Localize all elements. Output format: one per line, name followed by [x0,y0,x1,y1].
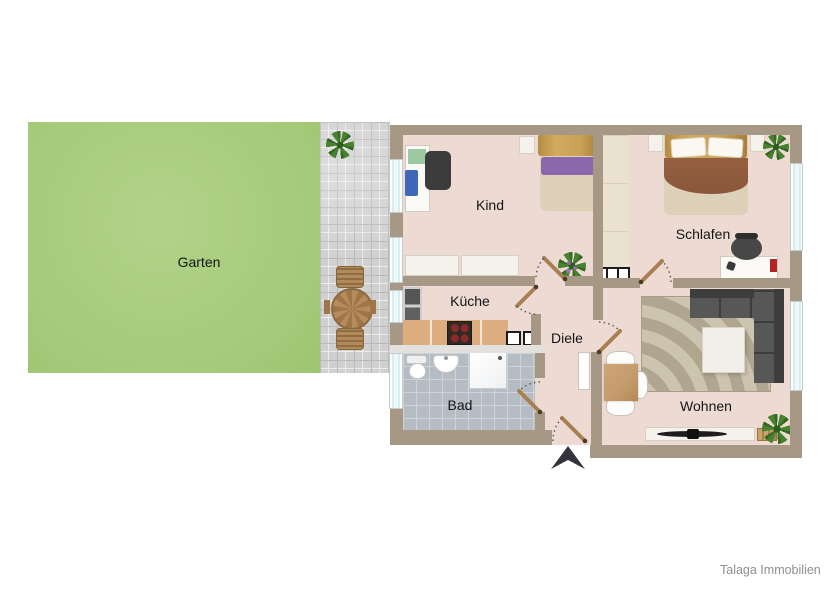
door-leaf [517,287,536,306]
brand-watermark: Talaga Immobilien [720,563,821,577]
door-swing-arc [599,322,620,331]
door-hinge [538,410,543,415]
door-hinge [534,285,539,290]
door-hinge [597,350,602,355]
room-label-bad: Bad [448,397,473,413]
door-swing-arc [519,382,540,391]
entrance-door-leaf [562,418,585,441]
door-swing-arc [662,261,671,282]
door-hinge [563,277,568,282]
floorplan-canvas: Garten [0,0,834,589]
door-swings-overlay [0,0,834,589]
door-hinge [639,280,644,285]
door-hinge [583,439,588,444]
entrance-arrow-icon [551,446,585,469]
room-label-kind: Kind [476,197,504,213]
door-leaf [641,261,662,282]
room-label-kueche: Küche [450,293,490,309]
room-label-wohnen: Wohnen [680,398,732,414]
door-swing-arc [517,306,536,314]
door-leaf [599,331,620,352]
door-leaf [519,391,540,412]
room-label-diele: Diele [551,330,583,346]
room-label-schlafen: Schlafen [676,226,730,242]
door-swing-arc [553,418,562,441]
door-swing-arc [536,258,544,277]
door-leaf [544,258,565,279]
